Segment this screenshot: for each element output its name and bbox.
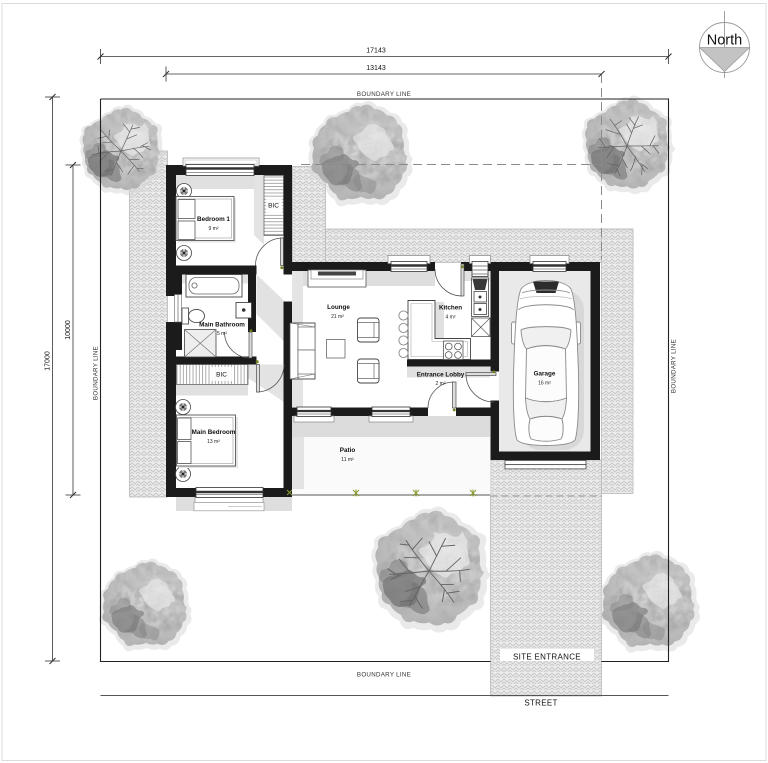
svg-text:9 m²: 9 m² xyxy=(209,226,219,232)
svg-text:5 m²: 5 m² xyxy=(217,331,227,337)
svg-text:BIC: BIC xyxy=(216,372,227,379)
svg-text:STREET: STREET xyxy=(524,699,557,708)
svg-text:BOUNDARY LINE: BOUNDARY LINE xyxy=(357,672,411,679)
svg-text:2 m²: 2 m² xyxy=(436,381,446,387)
svg-text:Lounge: Lounge xyxy=(327,304,350,311)
svg-text:North: North xyxy=(707,33,742,49)
svg-text:Entrance Lobby: Entrance Lobby xyxy=(417,372,465,379)
svg-text:BOUNDARY LINE: BOUNDARY LINE xyxy=(671,339,678,393)
svg-text:17143: 17143 xyxy=(366,48,386,55)
svg-text:Patio: Patio xyxy=(340,447,356,454)
svg-text:11 m²: 11 m² xyxy=(341,457,354,463)
svg-text:Bedroom 1: Bedroom 1 xyxy=(197,216,230,223)
svg-text:Main Bedroom: Main Bedroom xyxy=(192,429,236,436)
svg-text:BOUNDARY LINE: BOUNDARY LINE xyxy=(93,346,100,400)
svg-text:13143: 13143 xyxy=(366,65,386,72)
svg-text:21 m²: 21 m² xyxy=(331,314,344,320)
svg-text:10000: 10000 xyxy=(65,320,72,340)
svg-text:BOUNDARY LINE: BOUNDARY LINE xyxy=(357,91,411,98)
svg-text:Main Bathroom: Main Bathroom xyxy=(199,322,245,329)
svg-text:16 m²: 16 m² xyxy=(538,381,551,387)
svg-text:SITE ENTRANCE: SITE ENTRANCE xyxy=(513,653,581,662)
svg-text:BIC: BIC xyxy=(268,203,279,210)
svg-text:Kitchen: Kitchen xyxy=(439,305,462,312)
svg-text:4 m²: 4 m² xyxy=(446,315,456,321)
svg-text:17000: 17000 xyxy=(45,351,52,371)
svg-text:13 m²: 13 m² xyxy=(207,439,220,445)
svg-text:Garage: Garage xyxy=(534,371,556,378)
